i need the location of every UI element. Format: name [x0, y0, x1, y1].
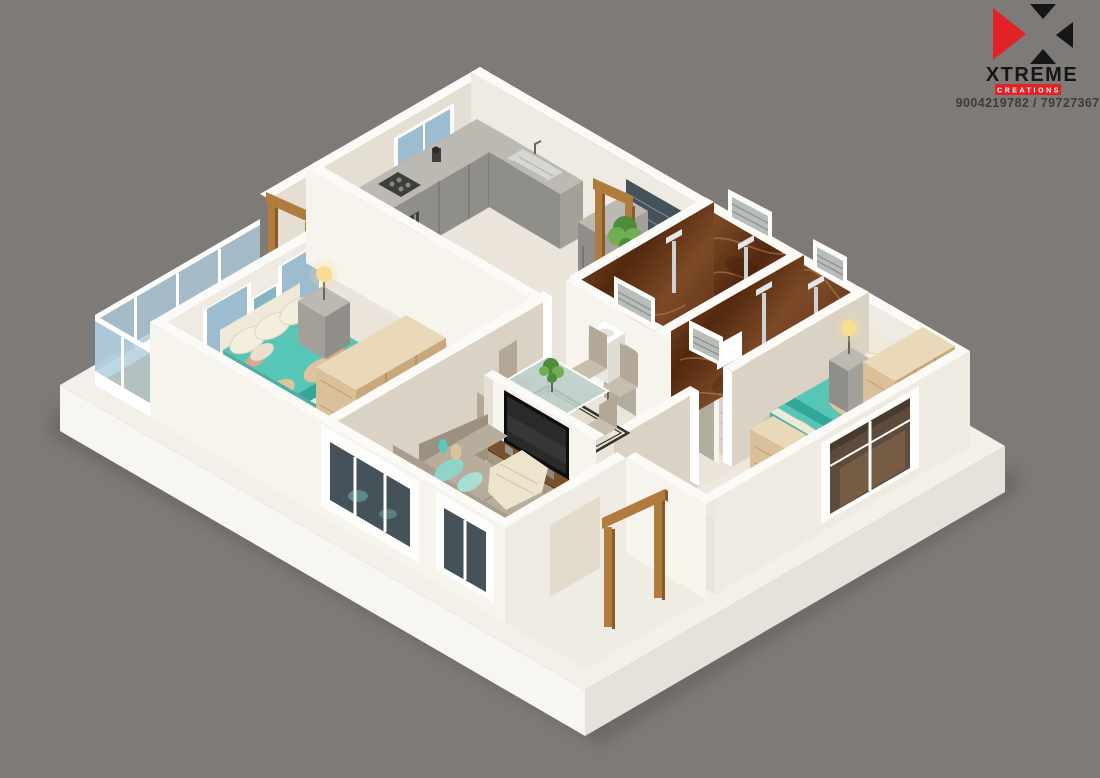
- brand-tagline: CREATIONS: [997, 88, 1061, 95]
- decor-vase-beige: [451, 444, 462, 460]
- decor-vase-teal: [439, 439, 448, 453]
- shower-column: [762, 293, 766, 345]
- brand-company-name: XTREME: [986, 64, 1078, 86]
- brand-phone-numbers: 9004219782 / 7972736715: [956, 96, 1100, 110]
- floorplan-3d-render: XTREME CREATIONS 9004219782 / 7972736715: [0, 0, 1100, 778]
- shower-column: [672, 241, 676, 293]
- render-canvas: XTREME CREATIONS 9004219782 / 7972736715: [0, 0, 1100, 778]
